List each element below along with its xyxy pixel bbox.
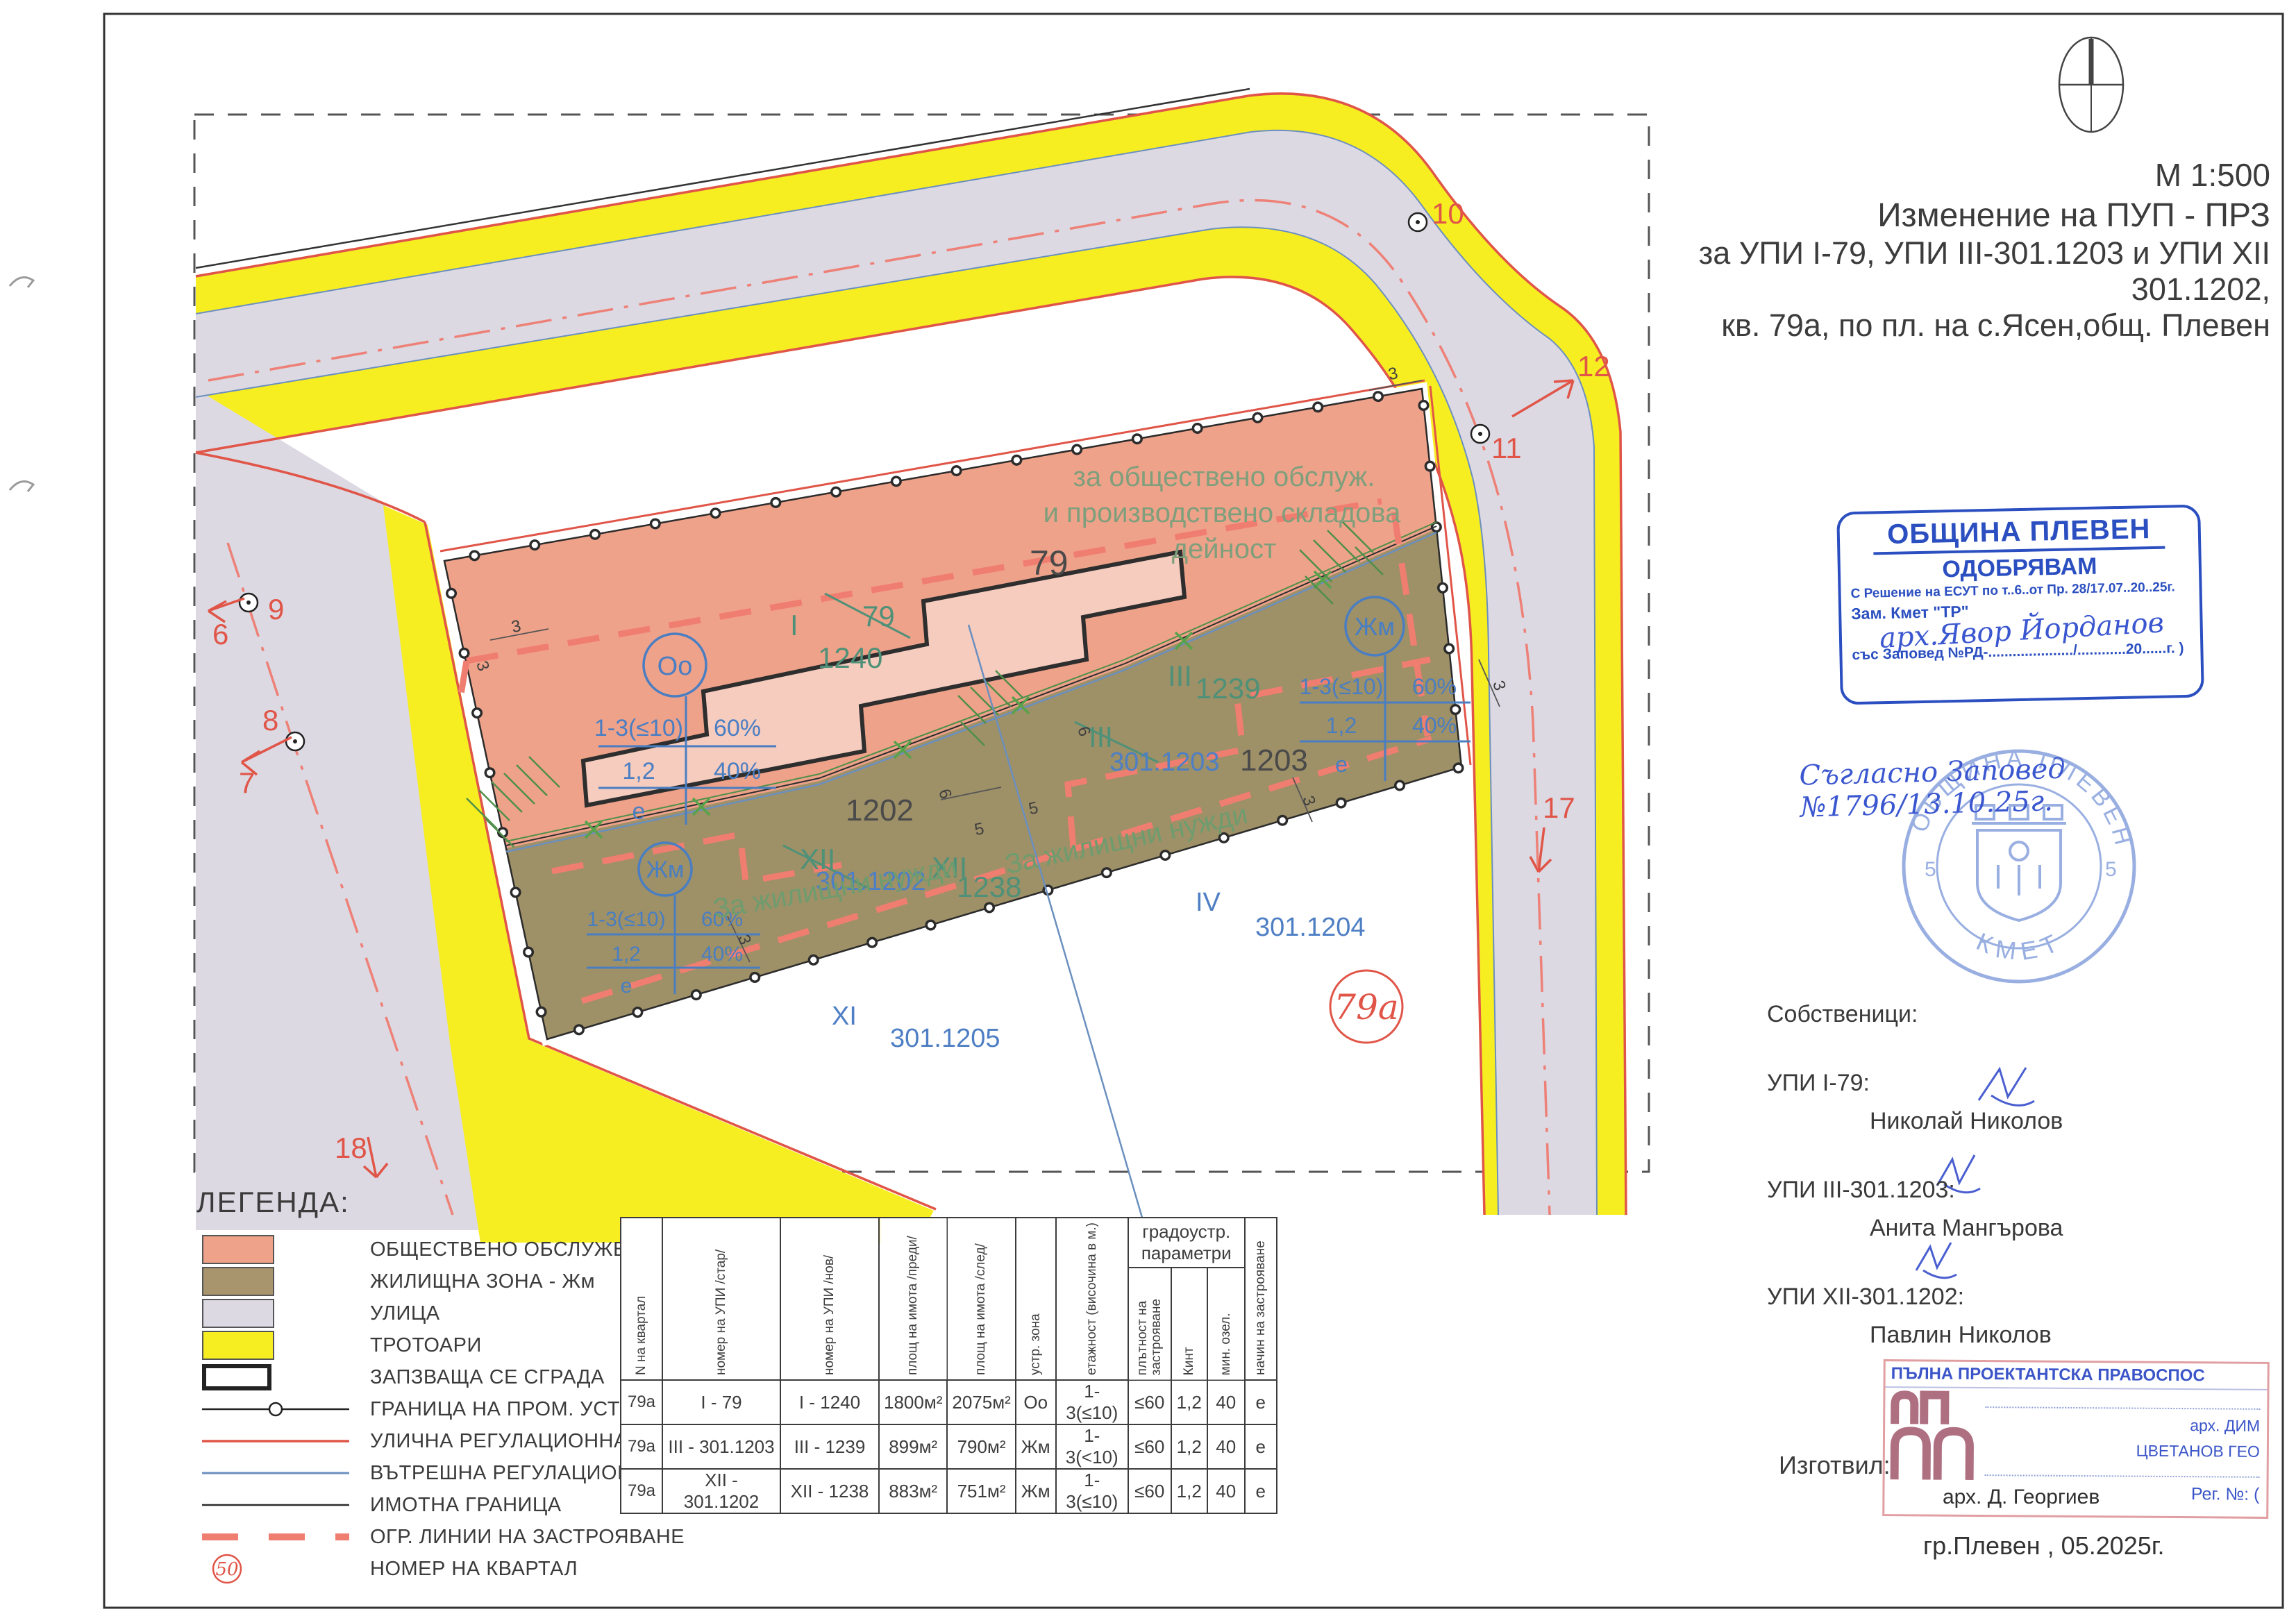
- place-and-date: гр.Плевен , 05.2025г.: [1923, 1531, 2165, 1561]
- approval-stamp: ОБЩИНА ПЛЕВЕН ОДОБРЯВАМ С Решение на ЕСУ…: [1836, 505, 2204, 705]
- group-header-urban-params: градоустр. параметри: [1128, 1218, 1245, 1268]
- swatch-sidewalk: [202, 1331, 274, 1360]
- cell: е: [1245, 1469, 1277, 1513]
- cell: 883м²: [879, 1469, 947, 1513]
- stamp-architect-name1: арх. ДИМ: [1985, 1415, 2260, 1436]
- cell: 2075м²: [947, 1380, 1015, 1424]
- zhm-floors: 1-3(≤10): [587, 908, 665, 931]
- north-arrow-icon: [2059, 37, 2123, 132]
- cell: 40: [1207, 1380, 1245, 1424]
- legend-label: ТРОТОАРИ: [370, 1334, 482, 1357]
- table-row: 79а III - 301.1203 III - 1239 899м² 790м…: [621, 1424, 1277, 1469]
- cell: XII - 301.1202: [662, 1469, 780, 1513]
- pt-8: 8: [262, 704, 278, 737]
- cell: 79а: [621, 1424, 662, 1469]
- regulation-table: N на квартал номер на УПИ /стар/ номер н…: [620, 1217, 1277, 1514]
- zhm-kint: 1,2: [1326, 713, 1357, 738]
- owner-name: Павлин Николов: [1870, 1322, 2239, 1349]
- zhm-floors: 1-3(≤10): [1300, 674, 1384, 699]
- cell: 1-3(<10): [1056, 1424, 1128, 1469]
- scan-artifact-icon: [10, 278, 33, 492]
- cell: ≤60: [1128, 1380, 1171, 1424]
- parcel-1203: 1203: [1240, 743, 1308, 777]
- col-header-area-after: площ на имота /след/: [947, 1218, 1015, 1380]
- title-block: М 1:500 Изменение на ПУП - ПРЗ за УПИ I-…: [1576, 157, 2270, 344]
- oo-green: 40%: [714, 758, 761, 784]
- oo-floors: 1-3(≤10): [594, 715, 683, 741]
- legend-label: ИМОТНА ГРАНИЦА: [370, 1494, 562, 1517]
- zhm-kint: 1,2: [612, 943, 641, 966]
- oo-zone-label: Оо: [657, 652, 693, 681]
- cell: 79а: [621, 1469, 662, 1513]
- doc-title-line1: Изменение на ПУП - ПРЗ: [1576, 196, 2270, 235]
- cell: 79а: [621, 1380, 662, 1424]
- owner-parcel: УПИ I-79:: [1767, 1070, 2239, 1097]
- legend-item: 50 НОМЕР НА КВАРТАЛ: [196, 1555, 835, 1583]
- cell: е: [1245, 1424, 1277, 1469]
- cell: 40: [1207, 1424, 1245, 1469]
- zone-note-3: дейност: [1172, 534, 1277, 564]
- new-upi-III: III: [1168, 659, 1192, 692]
- cell: I - 1240: [780, 1380, 879, 1424]
- col-header-upi-old: номер на УПИ /стар/: [662, 1218, 780, 1380]
- symbol-building-limit: [196, 1527, 356, 1547]
- owner-name: Анита Мангърова: [1870, 1215, 2239, 1242]
- new-num-1239: 1239: [1196, 672, 1260, 705]
- cell: 1,2: [1171, 1424, 1207, 1469]
- col-header-quarter: N на квартал: [621, 1218, 662, 1380]
- legend-label: НОМЕР НА КВАРТАЛ: [370, 1558, 578, 1581]
- col-header-upi-new: номер на УПИ /нов/: [780, 1218, 879, 1380]
- cell: ≤60: [1128, 1424, 1171, 1469]
- round-stamp-5-left: 5: [1925, 858, 1936, 881]
- col-header-build-mode: начин на застрояване: [1245, 1218, 1277, 1380]
- swatch-residential: [202, 1267, 274, 1296]
- cell: III - 301.1203: [662, 1424, 780, 1469]
- cell: 751м²: [947, 1469, 1015, 1513]
- architect-name: арх. Д. Георгиев: [1943, 1486, 2100, 1509]
- cell: XII - 1238: [780, 1469, 879, 1513]
- legend-item: ОГР. ЛИНИИ НА ЗАСТРОЯВАНЕ: [196, 1523, 835, 1551]
- cell: Оо: [1016, 1380, 1056, 1424]
- parcel-79-label: 79: [1030, 544, 1069, 582]
- cell: 1-3(≤10): [1056, 1380, 1128, 1424]
- symbol-street-regulation: [196, 1431, 356, 1452]
- owner-name: Николай Николов: [1870, 1108, 2239, 1135]
- oo-mode: е: [632, 798, 646, 825]
- zhm-density: 60%: [1412, 674, 1457, 699]
- round-stamp-5-right: 5: [2105, 858, 2117, 881]
- doc-title-line3: кв. 79а, по пл. на с.Ясен,общ. Плевен: [1576, 308, 2270, 344]
- cell: 1800м²: [879, 1380, 947, 1424]
- handwritten-order-note: Съгласно Заповед №1796/13.10.25г.: [1799, 748, 2259, 823]
- svg-text:КМЕТ: КМЕТ: [1972, 926, 2068, 966]
- zhm-mode: е: [621, 975, 632, 998]
- stamp-sign-label: подпис..........: [2172, 1514, 2261, 1519]
- owner-parcel: УПИ III-301.1203:: [1767, 1177, 2239, 1204]
- prepared-by-label: Изготвил:: [1779, 1451, 1891, 1480]
- zhm-zone-label: Жм: [1355, 612, 1395, 641]
- upi-IV: IV: [1196, 888, 1221, 917]
- table-row: 79а I - 79 I - 1240 1800м² 2075м² Оо 1-3…: [621, 1380, 1277, 1424]
- cell: ≤60: [1128, 1469, 1171, 1513]
- table-row: 79а XII - 301.1202 XII - 1238 883м² 751м…: [621, 1469, 1277, 1513]
- legend-label: ЖИЛИЩНА ЗОНА - Жм: [370, 1270, 595, 1293]
- stamp-dotted-line: [1985, 1391, 2260, 1410]
- zone-note-2: и производствено складова: [1044, 498, 1402, 528]
- round-stamp-bottom-text: КМЕТ: [1972, 926, 2068, 966]
- pt-7: 7: [239, 766, 255, 799]
- cell: Жм: [1016, 1424, 1056, 1469]
- stamp-dotted-line: [1985, 1459, 2260, 1478]
- legend-label: УЛИЦА: [370, 1302, 440, 1325]
- architect-stamp-title: ПЪЛНА ПРОЕКТАНТСКА ПРАВОСПОС: [1886, 1361, 2268, 1390]
- zone-note-1: за обществено обслуж.: [1073, 462, 1375, 492]
- cell: 899м²: [879, 1424, 947, 1469]
- owners-section: Собственици: УПИ I-79: Николай Николов У…: [1767, 1001, 2239, 1349]
- swatch-public-service: [202, 1235, 274, 1264]
- symbol-quarter-number: 50: [196, 1553, 356, 1585]
- owners-heading: Собственици:: [1767, 1001, 2239, 1028]
- cell: 1,2: [1171, 1380, 1207, 1424]
- pt-11: 11: [1491, 432, 1522, 464]
- owner-parcel: УПИ XII-301.1202:: [1767, 1284, 2239, 1311]
- new-num-1240: 1240: [818, 641, 882, 674]
- cell: 1,2: [1171, 1469, 1207, 1513]
- zhm-zone-label: Жм: [646, 857, 685, 883]
- parcel-1202: 1202: [846, 793, 914, 827]
- col-header-zone: устр. зона: [1016, 1218, 1056, 1380]
- cell: 1-3(≤10): [1056, 1469, 1128, 1513]
- legend-quarter-number: 50: [215, 1559, 238, 1580]
- cell: III - 1239: [780, 1424, 879, 1469]
- cell: е: [1245, 1380, 1277, 1424]
- oo-kint: 1,2: [622, 758, 655, 784]
- col-header-area-before: площ на имота /преди/: [879, 1218, 947, 1380]
- symbol-regime-boundary: [196, 1399, 356, 1420]
- legend-label: ЗАПЗВАЩА СЕ СГРАДА: [370, 1366, 605, 1389]
- pt-6: 6: [212, 618, 228, 650]
- legend-heading: ЛЕГЕНДА:: [196, 1186, 835, 1219]
- col-header-kint: Кинт: [1171, 1268, 1207, 1380]
- swatch-retained-building: [202, 1364, 271, 1390]
- cell: I - 79: [662, 1380, 780, 1424]
- symbol-inner-regulation: [196, 1463, 356, 1483]
- symbol-property-boundary: [196, 1495, 356, 1515]
- cad-301-1203: 301.1203: [1109, 748, 1220, 777]
- quarter-number: 79а: [1334, 987, 1398, 1027]
- pt-12: 12: [1577, 350, 1610, 382]
- pt-10: 10: [1432, 197, 1464, 230]
- stamp-architect-name2: ЦВЕТАНОВ ГЕО: [1985, 1440, 2260, 1461]
- col-header-floors: етажност (височина в м.): [1056, 1218, 1128, 1380]
- zhm-mode: е: [1335, 752, 1348, 777]
- old-upi-I: I: [790, 609, 798, 641]
- kab-logo-icon: [1885, 1388, 1983, 1486]
- map-scale: М 1:500: [1576, 157, 2270, 194]
- cad-301-1205: 301.1205: [890, 1024, 1000, 1053]
- legend-label: ОГР. ЛИНИИ НА ЗАСТРОЯВАНЕ: [370, 1526, 685, 1549]
- oo-density: 60%: [714, 715, 761, 741]
- stamp-municipality: ОБЩИНА ПЛЕВЕН: [1873, 514, 2165, 555]
- cell: Жм: [1016, 1469, 1056, 1513]
- upi-XI: XI: [832, 1002, 857, 1031]
- pt-18: 18: [335, 1132, 367, 1164]
- col-header-min-green: мин. озел.: [1207, 1268, 1245, 1380]
- swatch-street: [202, 1299, 274, 1328]
- zhm-green: 40%: [1412, 713, 1457, 738]
- cad-301-1204: 301.1204: [1255, 913, 1366, 942]
- pt-17: 17: [1543, 791, 1575, 824]
- pt-9: 9: [268, 593, 284, 625]
- cell: 790м²: [947, 1424, 1015, 1469]
- doc-title-line2: за УПИ I-79, УПИ III-301.1203 и УПИ XII …: [1576, 235, 2270, 308]
- cell: 40: [1207, 1469, 1245, 1513]
- col-header-density: плътност на застрояване: [1128, 1268, 1171, 1380]
